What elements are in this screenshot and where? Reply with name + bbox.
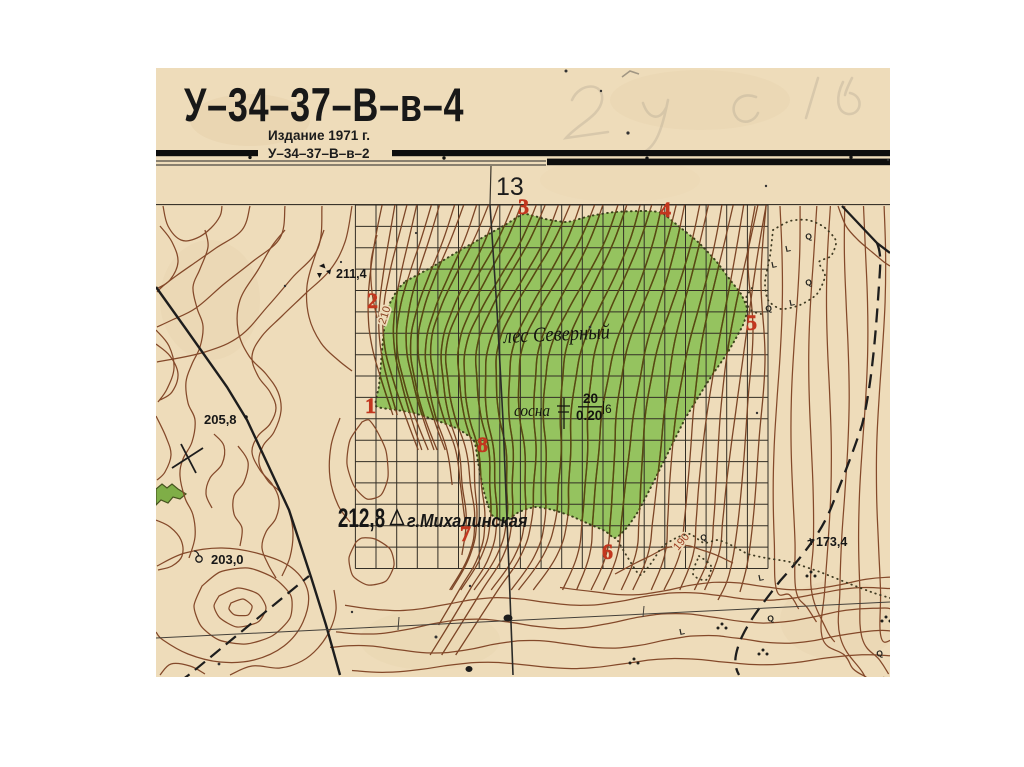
svg-text:У–34–37–В–в–2: У–34–37–В–в–2 xyxy=(268,146,370,161)
svg-text:205,8: 205,8 xyxy=(204,412,237,427)
svg-text:3: 3 xyxy=(518,194,529,219)
svg-text:Издание 1971 г.: Издание 1971 г. xyxy=(268,128,370,143)
svg-text:6: 6 xyxy=(602,539,613,564)
svg-text:173,4: 173,4 xyxy=(816,535,847,549)
svg-text:сосна: сосна xyxy=(514,402,550,420)
svg-text:2: 2 xyxy=(367,288,378,313)
svg-text:6: 6 xyxy=(605,402,612,416)
svg-text:7: 7 xyxy=(460,521,471,546)
svg-text:4: 4 xyxy=(660,197,671,222)
svg-text:лес Северный: лес Северный xyxy=(502,320,610,348)
svg-text:20: 20 xyxy=(583,391,598,406)
svg-text:У–34–37–В–в–4: У–34–37–В–в–4 xyxy=(184,78,464,131)
svg-text:1: 1 xyxy=(365,393,376,418)
svg-text:0.20: 0.20 xyxy=(576,408,602,423)
svg-text:8: 8 xyxy=(477,432,488,457)
svg-text:211,4: 211,4 xyxy=(336,267,367,281)
svg-text:5: 5 xyxy=(746,310,757,335)
svg-text:203,0: 203,0 xyxy=(211,552,244,567)
svg-text:212,8: 212,8 xyxy=(338,503,385,533)
